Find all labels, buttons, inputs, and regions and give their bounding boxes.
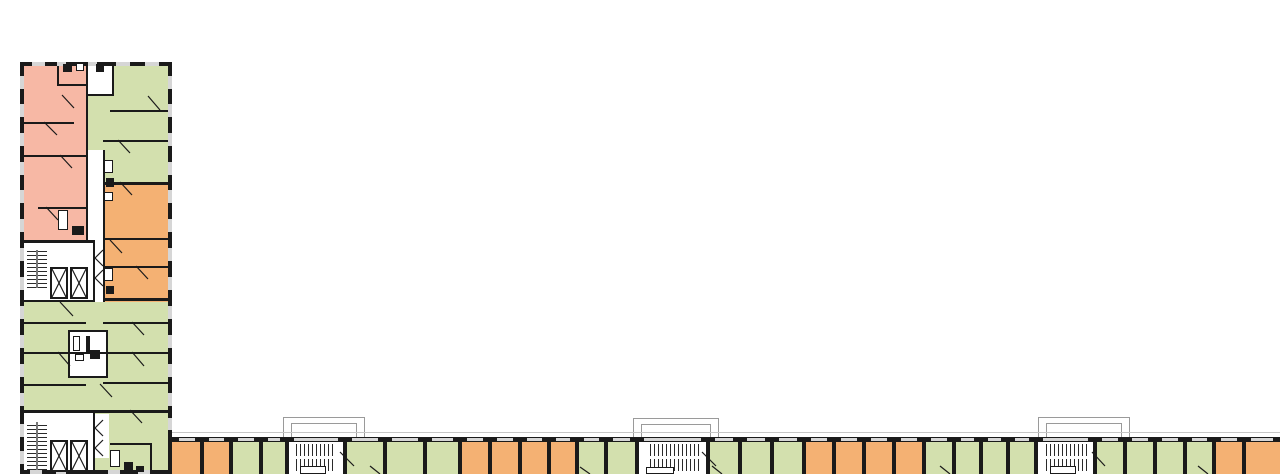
window-opening xyxy=(168,277,172,290)
window-opening xyxy=(1102,438,1118,441)
elevator-shaft xyxy=(70,267,88,299)
fixture xyxy=(104,268,113,281)
window-opening xyxy=(747,438,765,441)
window-opening xyxy=(168,104,172,117)
window-opening xyxy=(116,62,130,66)
room-orange xyxy=(549,442,577,474)
room-orange xyxy=(520,442,549,474)
window-opening xyxy=(901,438,917,441)
room-green xyxy=(425,442,460,474)
wall-segment xyxy=(24,410,168,413)
room-green xyxy=(231,442,261,474)
wall-segment xyxy=(93,412,95,474)
fixture xyxy=(1050,466,1076,474)
floor-plan-canvas xyxy=(0,0,1280,474)
room-green xyxy=(577,442,606,474)
wall-segment xyxy=(24,240,94,243)
fixture xyxy=(90,350,100,359)
room-orange xyxy=(864,442,894,474)
window-opening xyxy=(179,438,195,441)
fixture xyxy=(63,64,72,72)
window-opening xyxy=(20,248,24,261)
window-opening xyxy=(168,76,172,89)
window-opening xyxy=(20,104,24,117)
window-opening xyxy=(20,219,24,232)
window-opening xyxy=(168,393,172,406)
room-green xyxy=(345,442,385,474)
window-opening xyxy=(432,438,453,441)
window-opening xyxy=(20,190,24,203)
wall-segment xyxy=(93,240,95,302)
window-opening xyxy=(168,335,172,348)
room-orange xyxy=(894,442,924,474)
window-opening xyxy=(497,438,513,441)
wall-segment xyxy=(112,66,114,94)
wall-segment xyxy=(1034,442,1038,474)
window-opening xyxy=(20,451,24,464)
wall-segment xyxy=(103,322,168,324)
stair-flight xyxy=(296,444,336,456)
service-area xyxy=(95,414,109,458)
fixture xyxy=(76,63,84,71)
wall-segment xyxy=(57,66,59,86)
window-opening xyxy=(20,393,24,406)
window-opening xyxy=(168,364,172,377)
fixture xyxy=(106,178,114,187)
room-green xyxy=(954,442,981,474)
window-opening xyxy=(871,438,887,441)
window-opening xyxy=(1192,438,1207,441)
window-opening xyxy=(20,162,24,175)
room-green xyxy=(1008,442,1036,474)
wall-segment xyxy=(200,442,204,474)
fixture xyxy=(136,466,144,472)
wall-segment xyxy=(922,442,926,474)
window-opening xyxy=(168,133,172,146)
window-opening xyxy=(108,470,120,474)
window-opening xyxy=(1015,438,1029,441)
room-green xyxy=(1185,442,1214,474)
wall-segment xyxy=(738,442,742,474)
wall-segment xyxy=(1242,442,1246,474)
window-opening xyxy=(352,438,378,441)
window-opening xyxy=(168,190,172,203)
window-opening xyxy=(168,219,172,232)
fixture xyxy=(86,336,90,352)
fixture xyxy=(72,226,84,235)
stair-flight xyxy=(1046,444,1088,456)
wall-segment xyxy=(285,442,289,474)
wall-segment xyxy=(488,442,492,474)
window-opening xyxy=(1162,438,1178,441)
wall-segment xyxy=(24,384,86,386)
wall-segment xyxy=(1212,442,1216,474)
fixture xyxy=(96,64,104,72)
room-orange xyxy=(804,442,834,474)
room-green xyxy=(981,442,1008,474)
wall-segment xyxy=(24,122,74,124)
window-opening xyxy=(20,424,24,437)
wall-segment xyxy=(706,442,710,474)
window-opening xyxy=(168,162,172,175)
wall-segment xyxy=(259,442,263,474)
window-opening xyxy=(20,133,24,146)
window-opening xyxy=(392,438,418,441)
wall-segment xyxy=(575,442,579,474)
wall-segment xyxy=(1153,442,1157,474)
wall-segment xyxy=(604,442,608,474)
wall-segment xyxy=(103,382,168,384)
wall-segment xyxy=(168,62,172,474)
window-opening xyxy=(613,438,630,441)
window-opening xyxy=(1043,438,1088,441)
wall-segment xyxy=(38,207,86,209)
window-opening xyxy=(779,438,797,441)
fixture xyxy=(73,336,80,351)
stair-flight xyxy=(650,444,700,456)
wall-segment xyxy=(1183,442,1187,474)
roof-overhang-line xyxy=(168,432,1280,433)
window-opening xyxy=(20,277,24,290)
window-opening xyxy=(20,335,24,348)
window-opening xyxy=(467,438,483,441)
wall-segment xyxy=(229,442,233,474)
wall-segment xyxy=(103,140,168,142)
fixture xyxy=(58,210,68,230)
wall-segment xyxy=(1006,442,1010,474)
stair-flight xyxy=(38,250,47,288)
window-opening xyxy=(20,364,24,377)
room-green xyxy=(708,442,740,474)
wall-segment xyxy=(770,442,774,474)
room-orange xyxy=(1214,442,1244,474)
window-opening xyxy=(168,306,172,319)
plan-lines-overlay xyxy=(0,0,1280,474)
wall-segment xyxy=(383,442,387,474)
room-orange xyxy=(460,442,490,474)
wall-segment xyxy=(57,84,87,86)
window-opening xyxy=(145,62,159,66)
wall-segment xyxy=(24,322,86,324)
wall-segment xyxy=(635,442,639,474)
window-opening xyxy=(584,438,599,441)
wall-segment xyxy=(150,443,152,474)
elevator-shaft xyxy=(70,440,88,472)
fixture xyxy=(75,354,84,361)
stair-flight xyxy=(27,250,36,288)
window-opening xyxy=(527,438,542,441)
window-opening xyxy=(209,438,224,441)
window-opening xyxy=(961,438,974,441)
room-green xyxy=(261,442,287,474)
wall-segment xyxy=(343,442,347,474)
wall-segment xyxy=(110,110,168,112)
window-opening xyxy=(168,418,172,430)
wall-segment xyxy=(1093,442,1097,474)
window-opening xyxy=(1221,438,1237,441)
window-opening xyxy=(715,438,733,441)
window-opening xyxy=(841,438,857,441)
stair-flight xyxy=(38,422,47,470)
wall-segment xyxy=(423,442,427,474)
elevator-shaft xyxy=(50,440,68,472)
fixture xyxy=(646,467,674,474)
window-opening xyxy=(1132,438,1148,441)
wall-segment xyxy=(103,298,168,301)
room-orange xyxy=(1244,442,1280,474)
window-opening xyxy=(1251,438,1273,441)
wall-segment xyxy=(892,442,896,474)
wall-segment xyxy=(832,442,836,474)
window-opening xyxy=(238,438,254,441)
room-orange xyxy=(202,442,231,474)
fixture xyxy=(124,462,133,470)
window-opening xyxy=(644,438,701,441)
fixture xyxy=(104,160,113,173)
wall-segment xyxy=(862,442,866,474)
room-green xyxy=(385,442,425,474)
wall-segment xyxy=(103,238,168,240)
room-green xyxy=(1125,442,1155,474)
room-green xyxy=(772,442,804,474)
wall-segment xyxy=(518,442,522,474)
wall-segment xyxy=(86,94,114,96)
wall-segment xyxy=(979,442,983,474)
window-opening xyxy=(168,248,172,261)
window-opening xyxy=(20,306,24,319)
wall-segment xyxy=(110,443,152,445)
fixture xyxy=(104,192,113,201)
stair-flight xyxy=(27,422,36,470)
fixture xyxy=(106,286,114,294)
window-opening xyxy=(268,438,280,441)
fixture xyxy=(110,450,120,467)
fixture xyxy=(300,466,326,474)
wall-segment xyxy=(952,442,956,474)
wall-segment xyxy=(1123,442,1127,474)
room-orange xyxy=(172,442,202,474)
wall-segment xyxy=(547,442,551,474)
room-orange xyxy=(834,442,864,474)
wall-segment xyxy=(24,155,86,157)
wall-segment xyxy=(802,442,806,474)
wall-segment xyxy=(458,442,462,474)
elevator-shaft xyxy=(50,267,68,299)
window-opening xyxy=(294,438,338,441)
window-opening xyxy=(988,438,1001,441)
window-opening xyxy=(931,438,947,441)
room-pink xyxy=(24,66,86,240)
window-opening xyxy=(811,438,827,441)
wall-segment xyxy=(86,66,88,240)
room-green xyxy=(740,442,772,474)
window-opening xyxy=(32,62,45,66)
room-green xyxy=(1155,442,1185,474)
wall-segment xyxy=(24,300,94,302)
room-orange xyxy=(490,442,520,474)
window-opening xyxy=(20,76,24,89)
window-opening xyxy=(556,438,570,441)
room-green xyxy=(1095,442,1125,474)
window-opening xyxy=(30,470,42,474)
room-green xyxy=(924,442,954,474)
room-green xyxy=(606,442,637,474)
